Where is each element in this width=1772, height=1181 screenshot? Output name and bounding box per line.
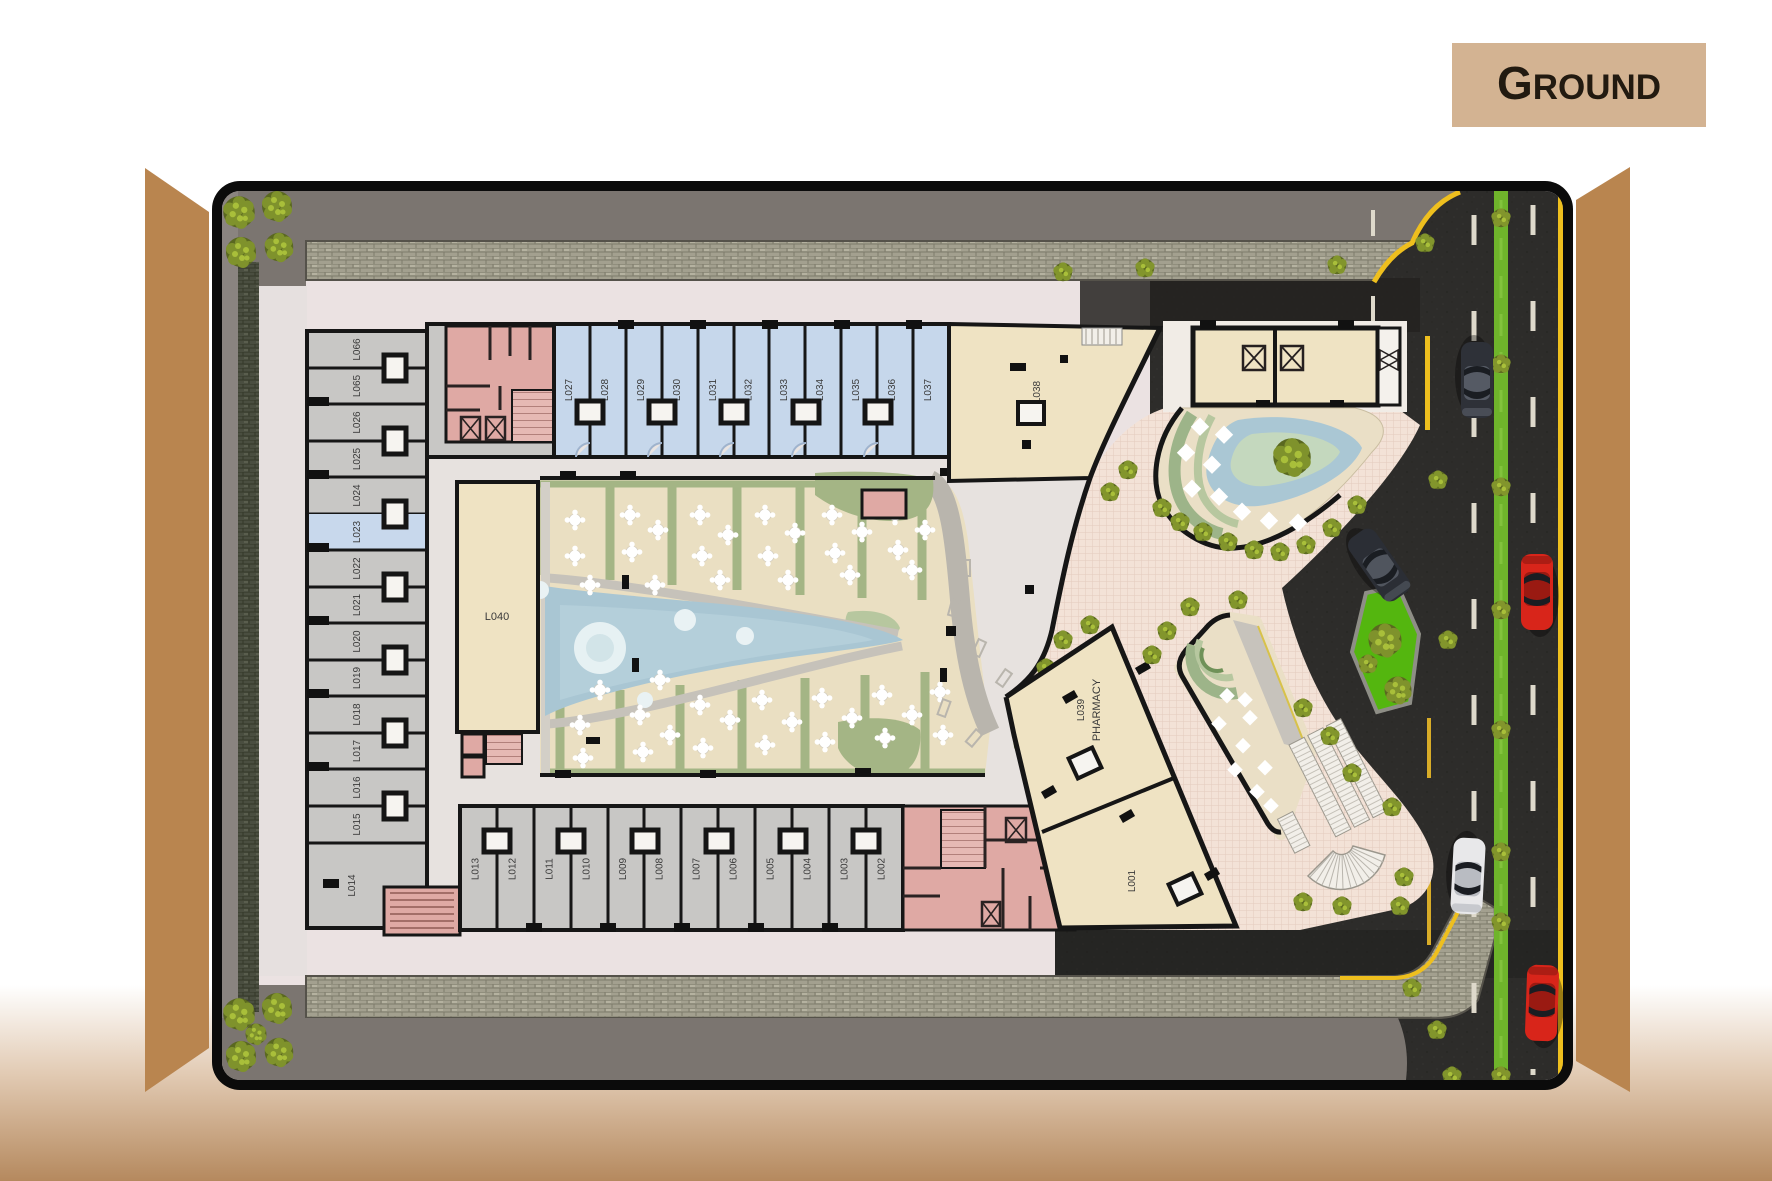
svg-text:L011: L011 xyxy=(545,858,556,880)
svg-text:L021: L021 xyxy=(352,593,363,616)
svg-text:L009: L009 xyxy=(618,857,629,880)
svg-text:L038: L038 xyxy=(1032,380,1043,403)
svg-text:L020: L020 xyxy=(352,630,363,653)
svg-text:L036: L036 xyxy=(887,378,898,401)
svg-text:L016: L016 xyxy=(352,776,363,799)
svg-text:L039: L039 xyxy=(1076,698,1087,721)
svg-text:L032: L032 xyxy=(744,378,755,401)
svg-text:L028: L028 xyxy=(600,378,611,401)
svg-text:L029: L029 xyxy=(636,378,647,401)
svg-text:L025: L025 xyxy=(352,447,363,470)
svg-text:L018: L018 xyxy=(352,703,363,726)
svg-text:L023: L023 xyxy=(352,520,363,543)
svg-text:L005: L005 xyxy=(766,857,777,880)
svg-text:L027: L027 xyxy=(564,378,575,401)
svg-text:L010: L010 xyxy=(582,857,593,880)
svg-text:L030: L030 xyxy=(672,378,683,401)
svg-text:PHARMACY: PHARMACY xyxy=(1091,678,1103,741)
svg-text:L008: L008 xyxy=(655,857,666,880)
svg-text:L017: L017 xyxy=(352,739,363,762)
svg-text:L033: L033 xyxy=(779,378,790,401)
svg-text:L015: L015 xyxy=(352,813,363,836)
svg-text:L037: L037 xyxy=(923,378,934,401)
svg-text:L007: L007 xyxy=(692,857,703,880)
svg-text:L022: L022 xyxy=(352,557,363,580)
svg-text:L040: L040 xyxy=(485,611,509,623)
svg-text:L012: L012 xyxy=(508,857,519,880)
svg-text:L014: L014 xyxy=(347,874,358,897)
svg-text:L035: L035 xyxy=(851,378,862,401)
svg-text:L024: L024 xyxy=(352,484,363,507)
svg-text:L034: L034 xyxy=(815,378,826,401)
svg-text:L031: L031 xyxy=(708,378,719,401)
svg-text:L019: L019 xyxy=(352,666,363,689)
svg-text:L004: L004 xyxy=(803,857,814,880)
svg-text:L003: L003 xyxy=(840,857,851,880)
svg-text:L013: L013 xyxy=(471,857,482,880)
svg-text:L065: L065 xyxy=(352,374,363,397)
svg-text:L006: L006 xyxy=(729,857,740,880)
svg-text:L066: L066 xyxy=(352,338,363,361)
svg-text:L002: L002 xyxy=(877,857,888,880)
svg-text:L001: L001 xyxy=(1127,869,1138,892)
svg-text:L026: L026 xyxy=(352,411,363,434)
